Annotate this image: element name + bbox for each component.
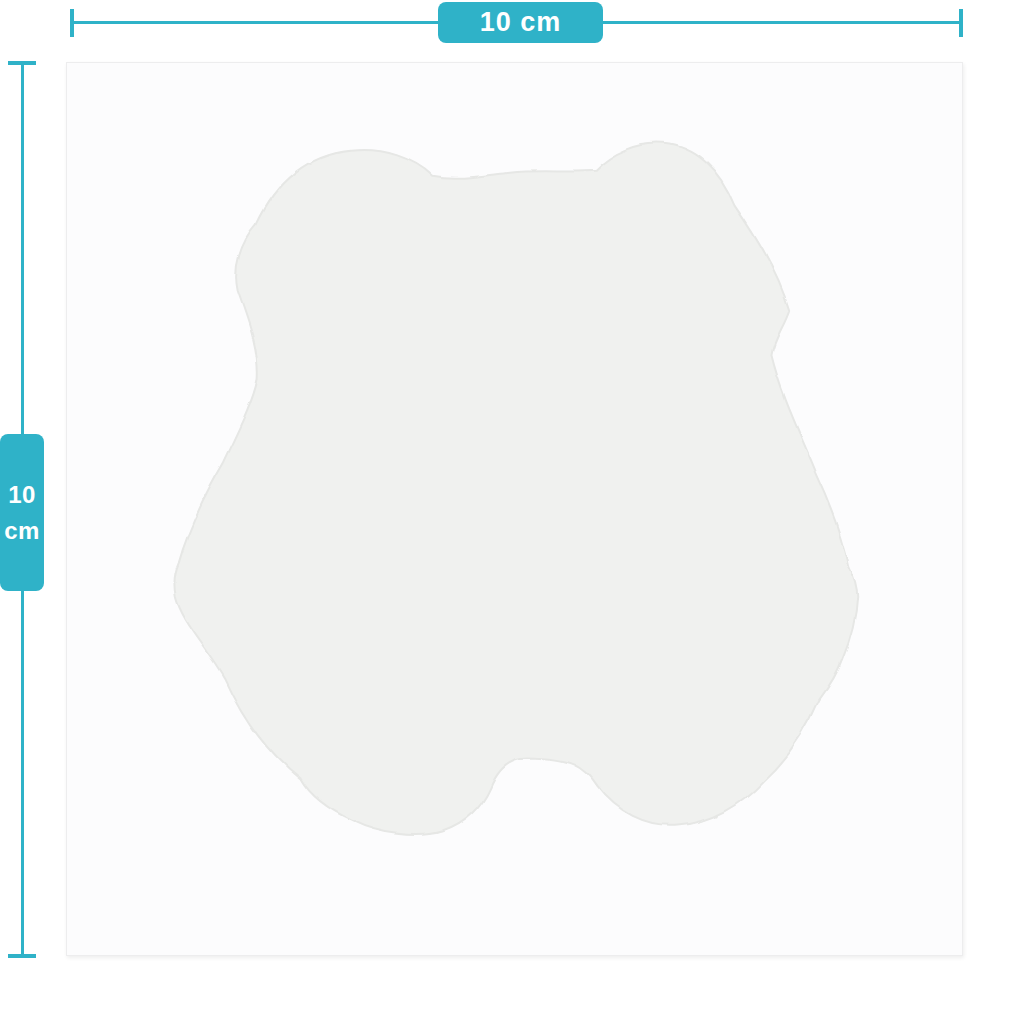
- dimension-endcap-left-icon: [70, 9, 74, 37]
- bear-sticker-silhouette: [67, 63, 962, 955]
- height-dimension-value: 10: [8, 477, 36, 513]
- height-dimension-unit: cm: [4, 513, 40, 549]
- width-dimension-label: 10 cm: [480, 7, 562, 38]
- dimension-endcap-right-icon: [959, 9, 963, 37]
- product-dimension-diagram: 10 cm 10 cm: [0, 0, 1024, 1024]
- height-dimension-badge: 10 cm: [0, 434, 44, 591]
- width-dimension-badge: 10 cm: [438, 2, 603, 43]
- dimension-endcap-bottom-icon: [8, 954, 36, 958]
- bear-shape-path: [174, 144, 857, 835]
- dimension-endcap-top-icon: [8, 61, 36, 65]
- product-canvas: [66, 62, 963, 956]
